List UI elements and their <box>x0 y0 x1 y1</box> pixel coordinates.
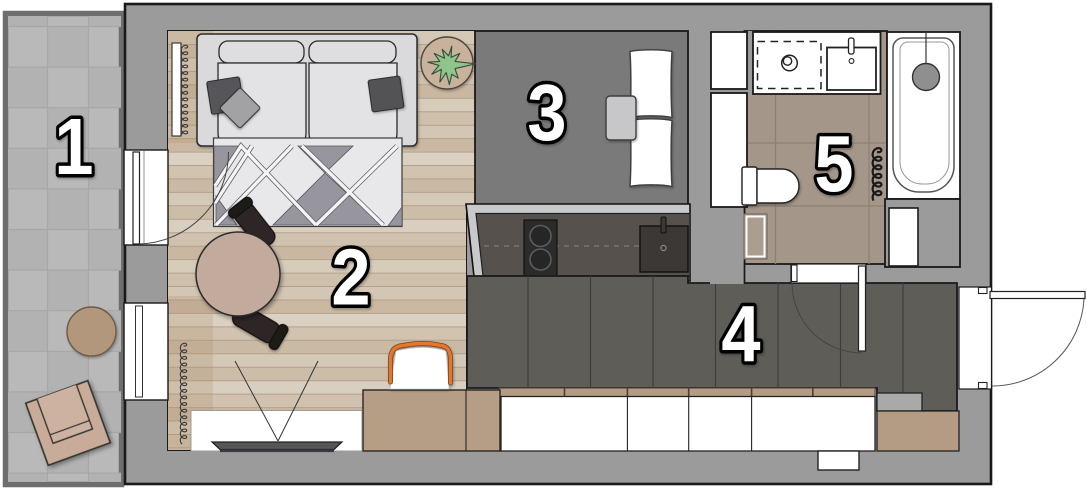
svg-text:4: 4 <box>721 289 760 378</box>
svg-text:1: 1 <box>54 102 93 191</box>
svg-text:5: 5 <box>814 119 853 208</box>
svg-text:3: 3 <box>527 68 566 157</box>
svg-text:2: 2 <box>331 232 370 321</box>
